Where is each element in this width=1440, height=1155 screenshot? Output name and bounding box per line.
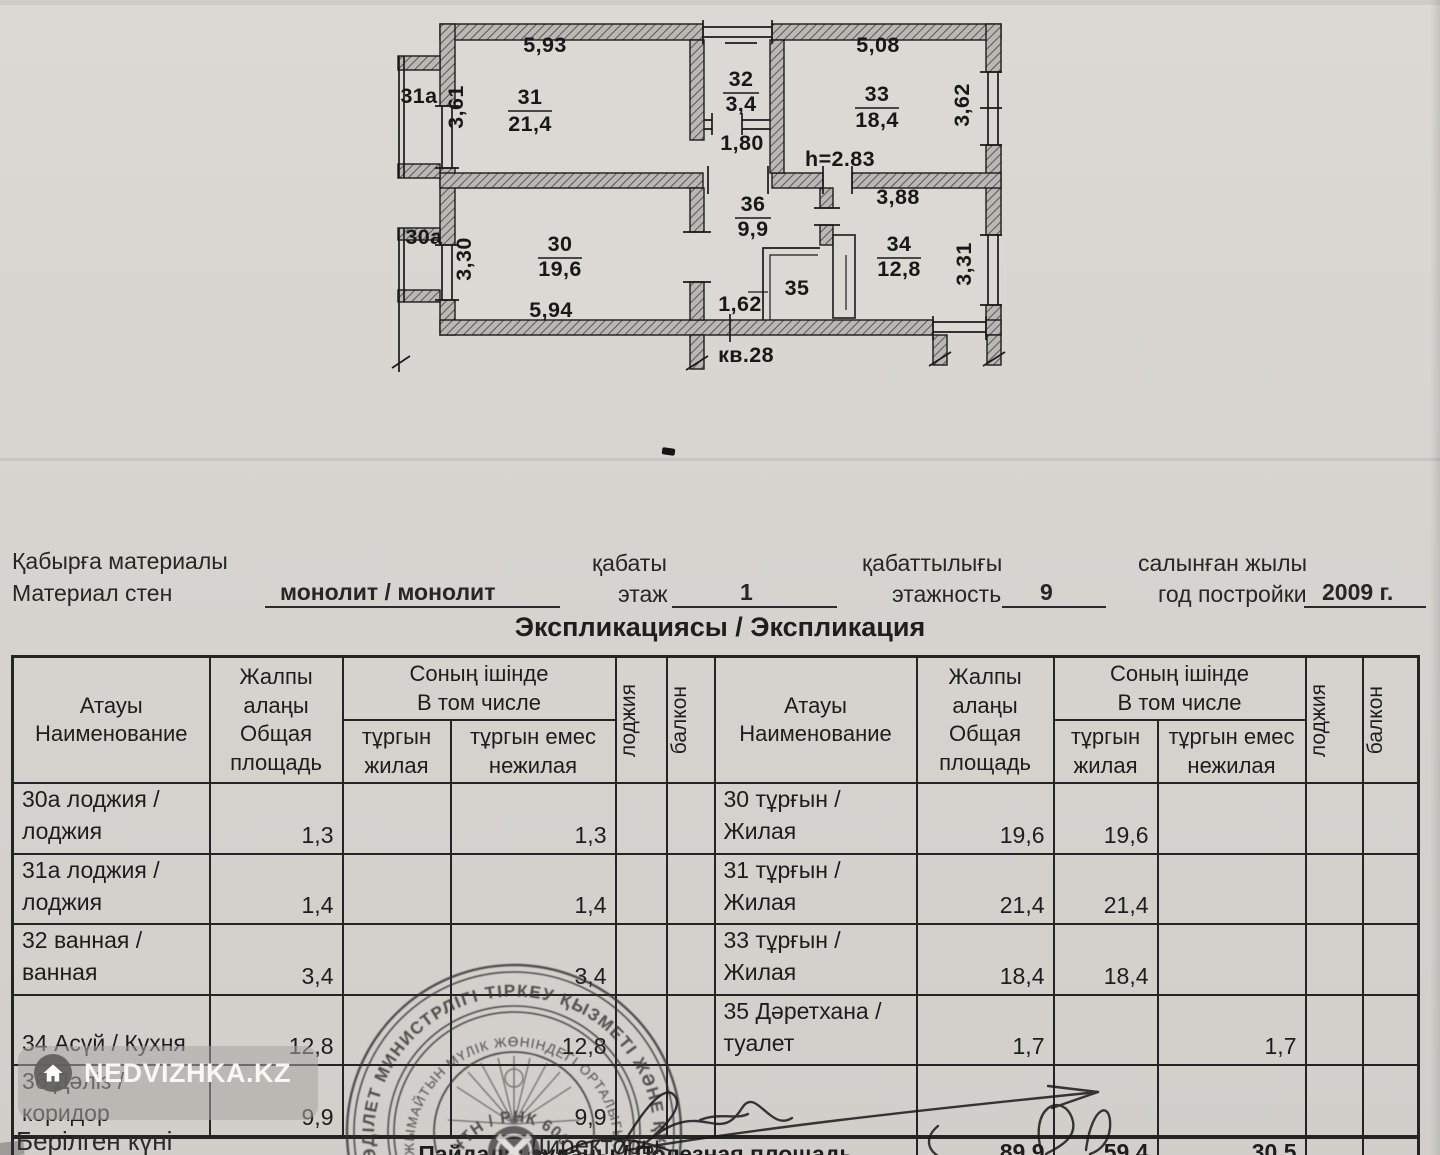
row-balcony [1363, 854, 1419, 924]
room-36-num: 36 [741, 192, 766, 216]
header-total-line3: Общая [920, 720, 1051, 749]
signature-strokes [560, 1086, 1110, 1155]
floors-underline [1002, 606, 1106, 608]
dim-h31: 3,61 [444, 85, 468, 128]
header-total-line3: Общая [213, 720, 340, 749]
dim-hall: 1,80 [720, 131, 763, 155]
table-row: 30а лоджия /лоджия 1,3 1,3 30 тұрғын / Ж… [13, 783, 1419, 853]
row-living [343, 854, 451, 924]
room-33-num: 33 [865, 82, 890, 106]
col-header-balcony-left: балкон [667, 657, 715, 784]
header-total-line2: алаңы [920, 692, 1051, 721]
dim-w33: 5,08 [856, 33, 899, 57]
header-loggia-vertical: лоджия [1307, 684, 1362, 757]
col-header-nonliving-left: тұргын емес нежилая [451, 720, 616, 783]
watermark-logo [34, 1054, 72, 1092]
wall-material-label-ru: Материал стен [12, 580, 172, 607]
total-loggia [1306, 1137, 1363, 1155]
svg-text:ЖЫЛЖЫМАЙТЫН МҮЛІК ЖӨНІНДЕГІ ОР: ЖЫЛЖЫМАЙТЫН МҮЛІК ЖӨНІНДЕГІ ОРТАЛЫҒЫ, РЕ… [300, 935, 626, 1155]
room-31-num: 31 [518, 85, 543, 109]
house-icon [41, 1061, 65, 1085]
row-name: 30а лоджия /лоджия [13, 783, 210, 853]
page-corner-shadow [0, 1140, 25, 1155]
room-36-area: 9,9 [737, 217, 768, 241]
header-living-ru: жилая [1057, 752, 1155, 781]
watermark-text: NEDVIZHKA.KZ [84, 1058, 291, 1089]
dim-w34: 3,88 [876, 185, 919, 209]
wall-material-value: монолит / монолит [280, 579, 495, 606]
header-name-ru: Наименование [16, 720, 207, 749]
row-nonliving: 1,3 [451, 783, 616, 853]
wall-material-label-kk: Қабырға материалы [12, 548, 228, 575]
header-incl-kk: Соның ішінде [1057, 660, 1303, 689]
official-stamp-and-signatures: ӘДІЛЕТ МИНИСТРЛІГІ ТІРКЕУ ҚЫЗМЕТІ ЖӘНЕ Қ… [300, 935, 1200, 1155]
floor-value: 1 [740, 579, 753, 606]
floors-label-kk: қабаттылығы [862, 550, 1002, 577]
room-30a-num: 30а [405, 225, 443, 249]
dim-h30: 3,30 [452, 237, 476, 280]
header-loggia-vertical: лоджия [617, 684, 666, 757]
paper-crease [0, 458, 1440, 461]
room-30-area: 19,6 [538, 257, 581, 281]
header-name-kk: Атауы [16, 692, 207, 721]
header-nonliving-ru: нежилая [1161, 752, 1303, 781]
col-header-name-right: Атауы Наименование [715, 657, 917, 784]
row-total: 19,6 [917, 783, 1054, 853]
dim-h33: 3,62 [950, 83, 974, 126]
row-nonliving [1158, 854, 1306, 924]
row-balcony [1363, 924, 1419, 994]
row-loggia [616, 854, 667, 924]
header-balcony-vertical: балкон [668, 686, 714, 754]
row-nonliving: 1,4 [451, 854, 616, 924]
dim-ceiling-height: h=2.83 [805, 147, 875, 171]
col-header-name-left: Атауы Наименование [13, 657, 210, 784]
col-header-total-right: Жалпы алаңы Общая площадь [917, 657, 1054, 784]
col-header-living-left: тұргын жилая [343, 720, 451, 783]
floor-underline [672, 606, 837, 608]
header-total-line4: площадь [920, 749, 1051, 778]
room-34-area: 12,8 [877, 257, 920, 281]
stamp-center-mark [488, 1126, 540, 1155]
year-label-kk: салынған жылы [1138, 550, 1307, 577]
col-header-including-right: Соның ішінде В том числе [1054, 657, 1306, 721]
table-row: 31а лоджия /лоджия 1,4 1,4 31 тұрғын / Ж… [13, 854, 1419, 924]
col-header-including-left: Соның ішінде В том числе [343, 657, 616, 721]
header-nonliving-kk: тұргын емес [454, 723, 613, 752]
col-header-living-right: тұргын жилая [1054, 720, 1158, 783]
header-nonliving-ru: нежилая [454, 752, 613, 781]
total-balcony [1363, 1137, 1419, 1155]
year-underline [1304, 606, 1426, 608]
page-edge-shadow-top [0, 0, 1440, 5]
header-name-kk: Атауы [718, 692, 914, 721]
floor-plan: 5,93 5,08 31 21,4 32 3,4 33 18,4 3,61 3,… [388, 8, 1010, 380]
header-living-kk: тұргын [1057, 723, 1155, 752]
col-header-nonliving-right: тұргын емес нежилая [1158, 720, 1306, 783]
room-30-num: 30 [548, 232, 573, 256]
header-incl-kk: Соның ішінде [346, 660, 613, 689]
header-total-line2: алаңы [213, 692, 340, 721]
row-loggia [1306, 854, 1363, 924]
row-loggia [1306, 924, 1363, 994]
header-living-ru: жилая [346, 752, 448, 781]
row-loggia [1306, 1065, 1363, 1136]
dim-entrance: 1,62 [718, 292, 761, 316]
dim-w30: 5,94 [529, 298, 572, 322]
room-32-area: 3,4 [725, 92, 756, 116]
room-32-num: 32 [729, 67, 754, 91]
col-header-total-left: Жалпы алаңы Общая площадь [210, 657, 343, 784]
row-balcony [1363, 1065, 1419, 1136]
floors-label-ru: этажность [892, 581, 1001, 608]
scanned-tech-passport-page: 5,93 5,08 31 21,4 32 3,4 33 18,4 3,61 3,… [0, 0, 1440, 1155]
header-incl-ru: В том числе [346, 689, 613, 718]
floors-value: 9 [1040, 579, 1053, 606]
row-living: 19,6 [1054, 783, 1158, 853]
row-name: 31 тұрғын / Жилая [715, 854, 917, 924]
row-name: 32 ванная / ванная [13, 924, 210, 994]
col-header-balcony-right: балкон [1363, 657, 1419, 784]
floor-label-kk: қабаты [592, 550, 667, 577]
header-nonliving-kk: тұргын емес [1161, 723, 1303, 752]
year-value: 2009 г. [1322, 579, 1393, 606]
row-balcony [1363, 783, 1419, 853]
room-34-num: 34 [887, 232, 912, 256]
year-label-ru: год постройки [1158, 581, 1307, 608]
dim-w31: 5,93 [523, 33, 566, 57]
room-35-num: 35 [785, 276, 810, 300]
header-incl-ru: В том числе [1057, 689, 1303, 718]
row-loggia [616, 783, 667, 853]
room-33-area: 18,4 [855, 108, 898, 132]
row-balcony [1363, 995, 1419, 1065]
row-balcony [667, 854, 715, 924]
issued-date-label: Берілген күні [16, 1126, 172, 1155]
header-total-line1: Жалпы [213, 663, 340, 692]
header-balcony-vertical: балкон [1364, 686, 1418, 754]
ink-mark [662, 447, 676, 456]
row-nonliving [1158, 783, 1306, 853]
stamp-band2-text: ЖЫЛЖЫМАЙТЫН МҮЛІК ЖӨНІНДЕГІ ОРТАЛЫҒЫ, РЕ… [300, 935, 626, 1155]
header-total-line4: площадь [213, 749, 340, 778]
page-title: Экспликациясы / Экспликация [0, 612, 1440, 643]
row-total: 1,3 [210, 783, 343, 853]
row-loggia [1306, 995, 1363, 1065]
header-name-ru: Наименование [718, 720, 914, 749]
header-total-line1: Жалпы [920, 663, 1051, 692]
row-living: 21,4 [1054, 854, 1158, 924]
room-31-area: 21,4 [508, 112, 551, 136]
row-total: 21,4 [917, 854, 1054, 924]
apartment-number: кв.28 [718, 343, 774, 367]
col-header-loggia-left: лоджия [616, 657, 667, 784]
row-balcony [667, 783, 715, 853]
row-name: 31а лоджия /лоджия [13, 854, 210, 924]
row-total: 1,4 [210, 854, 343, 924]
header-living-kk: тұргын [346, 723, 448, 752]
round-stamp: ӘДІЛЕТ МИНИСТРЛІГІ ТІРКЕУ ҚЫЗМЕТІ ЖӘНЕ Қ… [300, 935, 681, 1155]
dim-h34: 3,31 [952, 242, 976, 285]
row-living [343, 783, 451, 853]
room-31a-num: 31а [400, 84, 438, 108]
row-loggia [1306, 783, 1363, 853]
row-name: 30 тұрғын / Жилая [715, 783, 917, 853]
table-header-row-1: Атауы Наименование Жалпы алаңы Общая пло… [13, 657, 1419, 721]
col-header-loggia-right: лоджия [1306, 657, 1363, 784]
wall-material-underline [265, 606, 560, 608]
page-edge-shadow-right [1430, 0, 1440, 1155]
floor-label-ru: этаж [618, 581, 668, 608]
